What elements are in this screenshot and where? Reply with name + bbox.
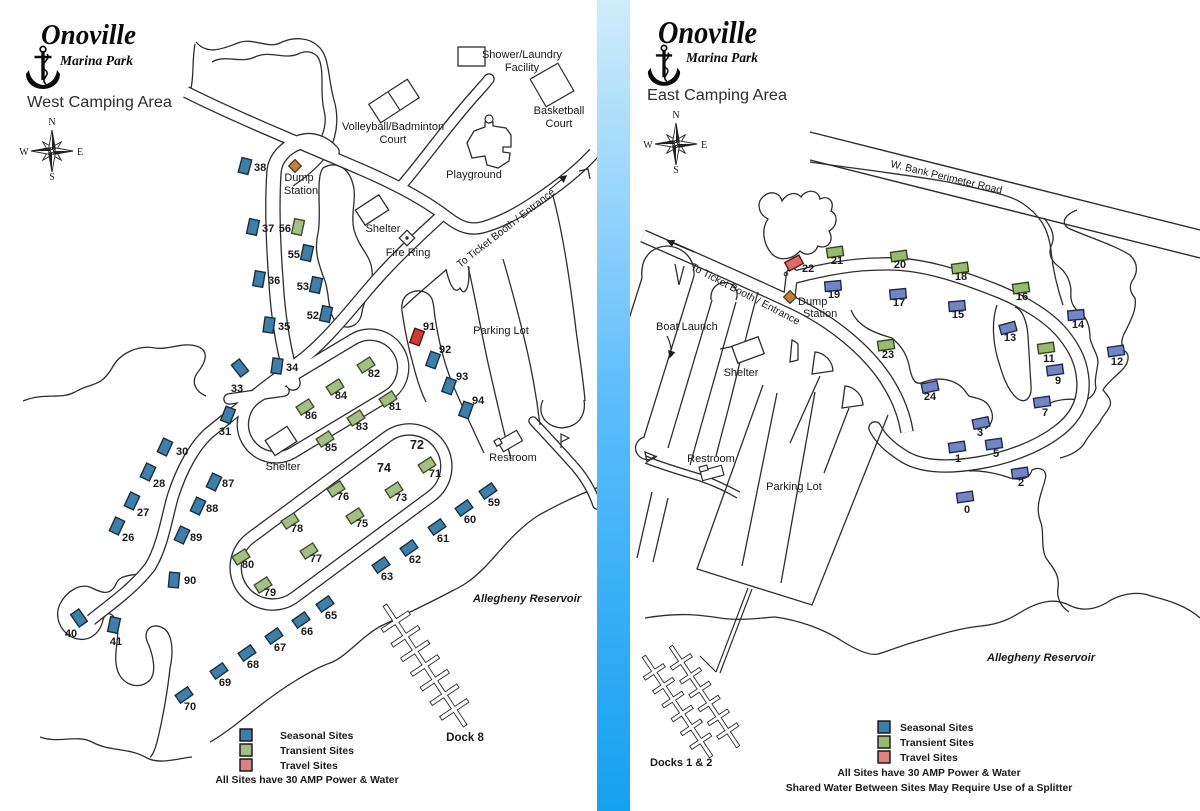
svg-text:74: 74 bbox=[377, 461, 391, 475]
svg-text:78: 78 bbox=[291, 523, 303, 535]
svg-text:18: 18 bbox=[955, 271, 967, 283]
svg-text:Boat Launch: Boat Launch bbox=[656, 321, 718, 333]
svg-text:59: 59 bbox=[488, 497, 500, 509]
svg-text:40: 40 bbox=[65, 628, 77, 640]
svg-text:Facility: Facility bbox=[505, 62, 540, 74]
svg-text:28: 28 bbox=[153, 478, 165, 490]
svg-text:77: 77 bbox=[310, 553, 322, 565]
svg-text:94: 94 bbox=[472, 395, 485, 407]
svg-text:Shared Water Between Sites May: Shared Water Between Sites May Require U… bbox=[786, 783, 1073, 794]
svg-text:52: 52 bbox=[307, 310, 319, 322]
svg-text:69: 69 bbox=[219, 677, 231, 689]
svg-text:82: 82 bbox=[368, 368, 380, 380]
svg-text:Seasonal Sites: Seasonal Sites bbox=[900, 723, 974, 734]
svg-text:23: 23 bbox=[882, 349, 894, 361]
svg-text:7: 7 bbox=[1042, 407, 1048, 419]
svg-text:11: 11 bbox=[1043, 353, 1055, 365]
svg-text:Volleyball/Badminton: Volleyball/Badminton bbox=[342, 121, 444, 133]
svg-text:Seasonal Sites: Seasonal Sites bbox=[280, 731, 354, 742]
svg-text:30: 30 bbox=[176, 446, 188, 458]
svg-text:38: 38 bbox=[254, 162, 266, 174]
svg-text:Marina Park: Marina Park bbox=[685, 51, 758, 66]
svg-text:93: 93 bbox=[456, 371, 468, 383]
svg-text:37: 37 bbox=[262, 223, 274, 235]
svg-text:75: 75 bbox=[356, 518, 368, 530]
svg-text:3: 3 bbox=[977, 427, 983, 439]
svg-text:Shelter: Shelter bbox=[266, 461, 301, 473]
svg-text:Dock 8: Dock 8 bbox=[446, 732, 484, 744]
svg-text:85: 85 bbox=[325, 442, 337, 454]
svg-text:Shower/Laundry: Shower/Laundry bbox=[482, 49, 563, 61]
svg-text:55: 55 bbox=[288, 249, 300, 261]
svg-text:13: 13 bbox=[1004, 332, 1016, 344]
svg-text:61: 61 bbox=[437, 533, 449, 545]
svg-text:Onoville: Onoville bbox=[658, 14, 757, 50]
svg-text:62: 62 bbox=[409, 554, 421, 566]
svg-text:20: 20 bbox=[894, 259, 906, 271]
svg-text:E: E bbox=[77, 147, 83, 158]
svg-text:West Camping Area: West Camping Area bbox=[27, 94, 172, 111]
svg-text:79: 79 bbox=[264, 587, 276, 599]
svg-text:Playground: Playground bbox=[446, 169, 502, 181]
svg-text:All Sites have 30 AMP Power &: All Sites have 30 AMP Power & Water bbox=[837, 768, 1020, 779]
svg-text:41: 41 bbox=[110, 636, 122, 648]
svg-text:Fire Ring: Fire Ring bbox=[386, 247, 431, 259]
svg-text:W: W bbox=[19, 147, 29, 158]
svg-text:Basketball: Basketball bbox=[534, 105, 585, 117]
svg-text:63: 63 bbox=[381, 571, 393, 583]
svg-text:5: 5 bbox=[993, 448, 999, 460]
svg-text:12: 12 bbox=[1111, 356, 1123, 368]
svg-text:81: 81 bbox=[389, 401, 401, 413]
svg-text:Court: Court bbox=[380, 134, 407, 146]
svg-text:Shelter: Shelter bbox=[724, 367, 759, 379]
svg-text:60: 60 bbox=[464, 514, 476, 526]
svg-text:S: S bbox=[673, 165, 679, 176]
svg-text:N: N bbox=[48, 117, 55, 128]
svg-text:15: 15 bbox=[952, 309, 964, 321]
svg-text:All Sites have 30 AMP Power &: All Sites have 30 AMP Power & Water bbox=[215, 775, 398, 786]
svg-text:88: 88 bbox=[206, 503, 218, 515]
svg-text:Onoville: Onoville bbox=[41, 20, 136, 51]
svg-text:72: 72 bbox=[410, 438, 424, 452]
svg-text:Docks 1 & 2: Docks 1 & 2 bbox=[650, 757, 712, 769]
svg-text:66: 66 bbox=[301, 626, 313, 638]
svg-text:Transient Sites: Transient Sites bbox=[280, 746, 354, 757]
svg-text:76: 76 bbox=[337, 491, 349, 503]
svg-text:Station: Station bbox=[284, 185, 318, 197]
svg-text:E: E bbox=[701, 140, 707, 151]
svg-text:35: 35 bbox=[278, 321, 290, 333]
svg-text:Allegheny Reservoir: Allegheny Reservoir bbox=[986, 652, 1096, 664]
svg-text:34: 34 bbox=[286, 362, 299, 374]
svg-text:83: 83 bbox=[356, 421, 368, 433]
svg-text:2: 2 bbox=[1018, 477, 1024, 489]
svg-text:24: 24 bbox=[924, 391, 937, 403]
svg-text:73: 73 bbox=[395, 492, 407, 504]
svg-text:N: N bbox=[672, 110, 679, 121]
svg-text:9: 9 bbox=[1055, 375, 1061, 387]
svg-text:67: 67 bbox=[274, 642, 286, 654]
svg-text:21: 21 bbox=[831, 255, 843, 267]
svg-text:80: 80 bbox=[242, 559, 254, 571]
svg-text:W: W bbox=[643, 140, 653, 151]
svg-text:22: 22 bbox=[802, 263, 814, 275]
svg-text:Transient Sites: Transient Sites bbox=[900, 738, 974, 749]
svg-text:26: 26 bbox=[122, 532, 134, 544]
svg-text:86: 86 bbox=[305, 410, 317, 422]
svg-text:71: 71 bbox=[429, 468, 441, 480]
svg-text:16: 16 bbox=[1016, 291, 1028, 303]
svg-text:89: 89 bbox=[190, 532, 202, 544]
svg-text:East Camping Area: East Camping Area bbox=[647, 87, 787, 104]
svg-text:31: 31 bbox=[219, 426, 231, 438]
svg-text:14: 14 bbox=[1072, 319, 1085, 331]
svg-text:91: 91 bbox=[423, 321, 435, 333]
svg-text:Dump: Dump bbox=[798, 296, 827, 308]
svg-text:19: 19 bbox=[828, 289, 840, 301]
svg-text:1: 1 bbox=[955, 453, 961, 465]
svg-text:36: 36 bbox=[268, 275, 280, 287]
svg-text:Marina Park: Marina Park bbox=[59, 54, 133, 69]
svg-text:27: 27 bbox=[137, 507, 149, 519]
svg-text:Parking Lot: Parking Lot bbox=[473, 325, 529, 337]
svg-text:68: 68 bbox=[247, 659, 259, 671]
svg-text:Travel Sites: Travel Sites bbox=[280, 761, 338, 772]
svg-text:Shelter: Shelter bbox=[366, 223, 401, 235]
svg-text:Parking Lot: Parking Lot bbox=[766, 481, 822, 493]
svg-text:53: 53 bbox=[297, 281, 309, 293]
svg-text:Travel Sites: Travel Sites bbox=[900, 753, 958, 764]
svg-text:90: 90 bbox=[184, 575, 196, 587]
svg-text:56: 56 bbox=[279, 223, 291, 235]
svg-text:S: S bbox=[49, 172, 55, 183]
svg-text:Dump: Dump bbox=[284, 172, 313, 184]
svg-text:84: 84 bbox=[335, 390, 348, 402]
svg-text:Court: Court bbox=[546, 118, 573, 130]
svg-text:Restroom: Restroom bbox=[687, 453, 735, 465]
svg-text:70: 70 bbox=[184, 701, 196, 713]
svg-text:17: 17 bbox=[893, 297, 905, 309]
svg-text:Allegheny Reservoir: Allegheny Reservoir bbox=[472, 593, 582, 605]
svg-text:33: 33 bbox=[231, 383, 243, 395]
svg-text:Station: Station bbox=[803, 308, 837, 320]
svg-text:Restroom: Restroom bbox=[489, 452, 537, 464]
svg-text:87: 87 bbox=[222, 478, 234, 490]
svg-text:92: 92 bbox=[439, 344, 451, 356]
svg-text:0: 0 bbox=[964, 504, 970, 516]
svg-text:65: 65 bbox=[325, 610, 337, 622]
